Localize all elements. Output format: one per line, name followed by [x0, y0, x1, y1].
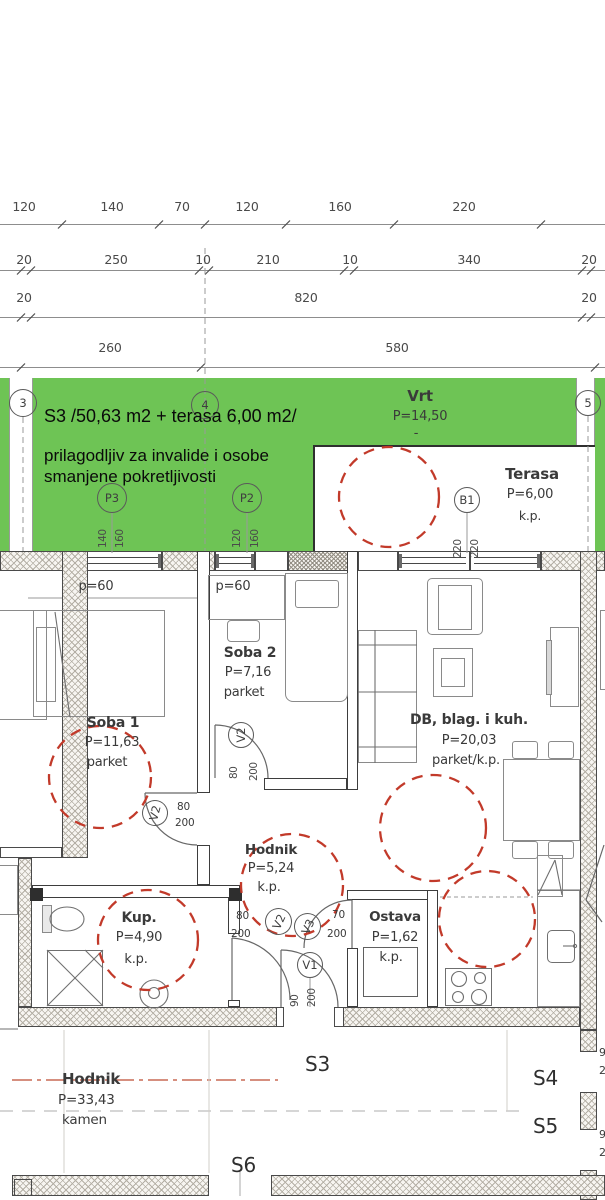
v2-kup-w: 80 — [236, 910, 249, 922]
soba1-area: P=11,63 — [85, 735, 140, 750]
kup-floor: k.p. — [124, 952, 147, 967]
v2-kup-h: 200 — [231, 928, 250, 940]
v1-h: 200 — [306, 980, 318, 1007]
grid-marker-3-label: 3 — [19, 396, 26, 410]
wall-post-kup-right — [229, 888, 242, 901]
door-marker-v2-soba2: V2 — [228, 722, 254, 748]
grid-marker-3: 3 — [9, 389, 37, 417]
soba2-name: Soba 2 — [224, 645, 277, 661]
party-wall-right — [580, 551, 597, 1030]
unit-subtitle-2: smanjene pokretljivosti — [44, 467, 216, 487]
chair-soba2 — [227, 620, 260, 642]
corridor-wall-bottom-right — [271, 1175, 605, 1196]
wall-kup-right-b — [228, 1000, 240, 1007]
unit-label-s4: S4 — [533, 1066, 558, 1090]
terrace-floor: k.p. — [519, 508, 541, 523]
grid-marker-5-label: 5 — [584, 396, 591, 410]
stove — [445, 968, 492, 1006]
v1-label: V1 — [302, 958, 317, 972]
dining-chair-1 — [512, 741, 538, 759]
dim-label: 20 — [581, 290, 597, 305]
soba2-floor: parket — [224, 685, 265, 700]
wc-tank — [42, 905, 52, 933]
tv-cabinet — [550, 627, 579, 707]
hodnik-floor: k.p. — [257, 880, 280, 895]
p3-label: P3 — [105, 491, 119, 505]
dim-label: 250 — [104, 252, 127, 267]
unit-title: S3 /50,63 m2 + terasa 6,00 m2/ — [44, 406, 297, 427]
dining-table — [503, 759, 580, 841]
wall-soba1-hodnik — [197, 845, 210, 885]
corridor-wall-right-a — [580, 1030, 597, 1052]
dim-label: 820 — [294, 290, 317, 305]
b1-dim1: 220 — [452, 520, 464, 558]
garden-strip-left — [0, 378, 9, 553]
v2-soba1-w: 80 — [177, 801, 190, 813]
door-marker-v1: V1 — [297, 952, 323, 978]
unit-label-s3: S3 — [305, 1052, 330, 1076]
window-marker-b1: B1 — [454, 487, 480, 513]
ostava-name: Ostava — [369, 909, 421, 925]
terrace-name: Terasa — [505, 465, 559, 483]
p2-dim1: 120 — [231, 514, 243, 548]
v3-ostava-h: 200 — [327, 928, 346, 940]
v2-soba1-label: V2 — [146, 804, 163, 822]
edge-dim: 2 — [599, 1146, 605, 1159]
garden-dash: - — [414, 426, 419, 441]
v2-kup-label: V2 — [269, 912, 288, 932]
party-wall-left-lower — [18, 858, 32, 1007]
p2-dim2: 160 — [249, 514, 261, 548]
window-marker-p2: P2 — [232, 483, 262, 513]
corridor-floor: kamen — [62, 1112, 107, 1128]
edge-dim: 2 — [599, 1064, 605, 1077]
dim-label: 20 — [16, 290, 32, 305]
v3-ostava-label: V3 — [298, 917, 317, 937]
v2-soba1-h: 200 — [175, 817, 194, 829]
v1-w: 90 — [289, 983, 301, 1007]
dim-label: 120 — [12, 199, 35, 214]
shower — [47, 950, 103, 1006]
living-area: P=20,03 — [442, 733, 497, 748]
p3-dim2: 160 — [114, 514, 126, 548]
garden-name: Vrt — [407, 387, 433, 405]
dim-label: 340 — [457, 252, 480, 267]
pillow-soba1 — [36, 627, 56, 702]
grid-marker-5: 5 — [575, 390, 601, 416]
neighbour-right-cabinet — [600, 610, 605, 690]
corridor-name: Hodnik — [62, 1070, 120, 1088]
edge-dim: 9 — [599, 1128, 605, 1141]
living-floor: parket/k.p. — [432, 753, 500, 768]
dining-chair-3 — [512, 841, 538, 859]
unit-subtitle-1: prilagodljiv za invalide i osobe — [44, 446, 269, 466]
soba2-parapet: p=60 — [216, 579, 251, 594]
sofa — [358, 630, 417, 763]
soba1-parapet: p=60 — [79, 579, 114, 594]
ostava-area: P=1,62 — [372, 930, 418, 945]
dim-label: 220 — [452, 199, 475, 214]
terrace-area: P=6,00 — [507, 487, 553, 502]
p2-label: P2 — [240, 491, 254, 505]
soba1-name: Soba 1 — [87, 715, 140, 731]
neighbour-cabinet — [0, 865, 18, 915]
soba2-area: P=7,16 — [225, 665, 271, 680]
wall-ostava-top — [347, 890, 438, 900]
b1-label: B1 — [459, 493, 474, 507]
ostava-floor: k.p. — [379, 950, 402, 965]
unit-label-s5: S5 — [533, 1114, 558, 1138]
entrance-post-right — [334, 1007, 344, 1027]
wall-top-4 — [358, 551, 398, 571]
v2-soba2-label: V2 — [234, 727, 248, 742]
kitchen-sink — [547, 930, 575, 963]
dim-label: 160 — [328, 199, 351, 214]
living-name: DB, blag. i kuh. — [410, 712, 528, 728]
wall-ostava-left — [347, 948, 358, 1007]
v2-soba2-w: 80 — [228, 753, 240, 779]
corridor-column — [14, 1179, 32, 1196]
soba1-floor: parket — [87, 755, 128, 770]
wall-bottom-left — [18, 1007, 282, 1027]
wall-post-kup-left — [30, 888, 43, 901]
b1-dim2: 220 — [469, 520, 481, 558]
dim-label: 210 — [256, 252, 279, 267]
dim-label: 70 — [174, 199, 190, 214]
window-soba2 — [215, 551, 255, 571]
hodnik-name: Hodnik — [245, 842, 297, 858]
dim-label: 20 — [16, 252, 32, 267]
corridor-wall-bottom-left — [12, 1175, 209, 1196]
dim-label: 10 — [342, 252, 358, 267]
wall-top-1 — [0, 551, 66, 571]
door-marker-v2-soba1: V2 — [139, 797, 171, 829]
door-marker-v3-ostava: V3 — [290, 909, 326, 945]
p3-dim1: 140 — [97, 514, 109, 548]
floor-plan: 3 4 5 P3 P2 B1 V2 V2 V2 V3 V1 120 140 70… — [0, 0, 605, 1200]
wall-top-3 — [255, 551, 288, 571]
garden-area: P=14,50 — [393, 409, 448, 424]
corridor-area: P=33,43 — [58, 1092, 115, 1108]
pillow-soba2 — [295, 580, 339, 608]
fridge — [537, 855, 563, 897]
dim-label: 20 — [581, 252, 597, 267]
kup-name: Kup. — [121, 910, 156, 926]
wall-soba2-living — [347, 551, 358, 790]
dim-label: 10 — [195, 252, 211, 267]
dim-label: 580 — [385, 340, 408, 355]
dim-label: 260 — [98, 340, 121, 355]
tv-screen — [546, 640, 552, 695]
kup-area: P=4,90 — [116, 930, 162, 945]
coffee-table-inner — [441, 658, 465, 687]
wall-soba2-hodnik — [264, 778, 347, 790]
v2-soba2-h: 200 — [248, 751, 260, 781]
armchair-cushion — [438, 585, 472, 630]
wall-ostava-right — [427, 890, 438, 1007]
v3-ostava-w: 70 — [332, 909, 345, 921]
dim-label: 140 — [100, 199, 123, 214]
edge-dim: 9 — [599, 1046, 605, 1059]
wall-bottom-right — [336, 1007, 580, 1027]
dim-label: 120 — [235, 199, 258, 214]
corridor-wall-right-b — [580, 1092, 597, 1130]
entrance-post-left — [276, 1007, 284, 1027]
unit-label-s6: S6 — [231, 1153, 256, 1177]
wall-kup-top — [32, 885, 240, 898]
hodnik-area: P=5,24 — [248, 861, 294, 876]
dining-chair-2 — [548, 741, 574, 759]
wall-jog — [0, 847, 62, 858]
door-marker-v2-kup: V2 — [261, 904, 297, 940]
window-marker-p3: P3 — [97, 483, 127, 513]
